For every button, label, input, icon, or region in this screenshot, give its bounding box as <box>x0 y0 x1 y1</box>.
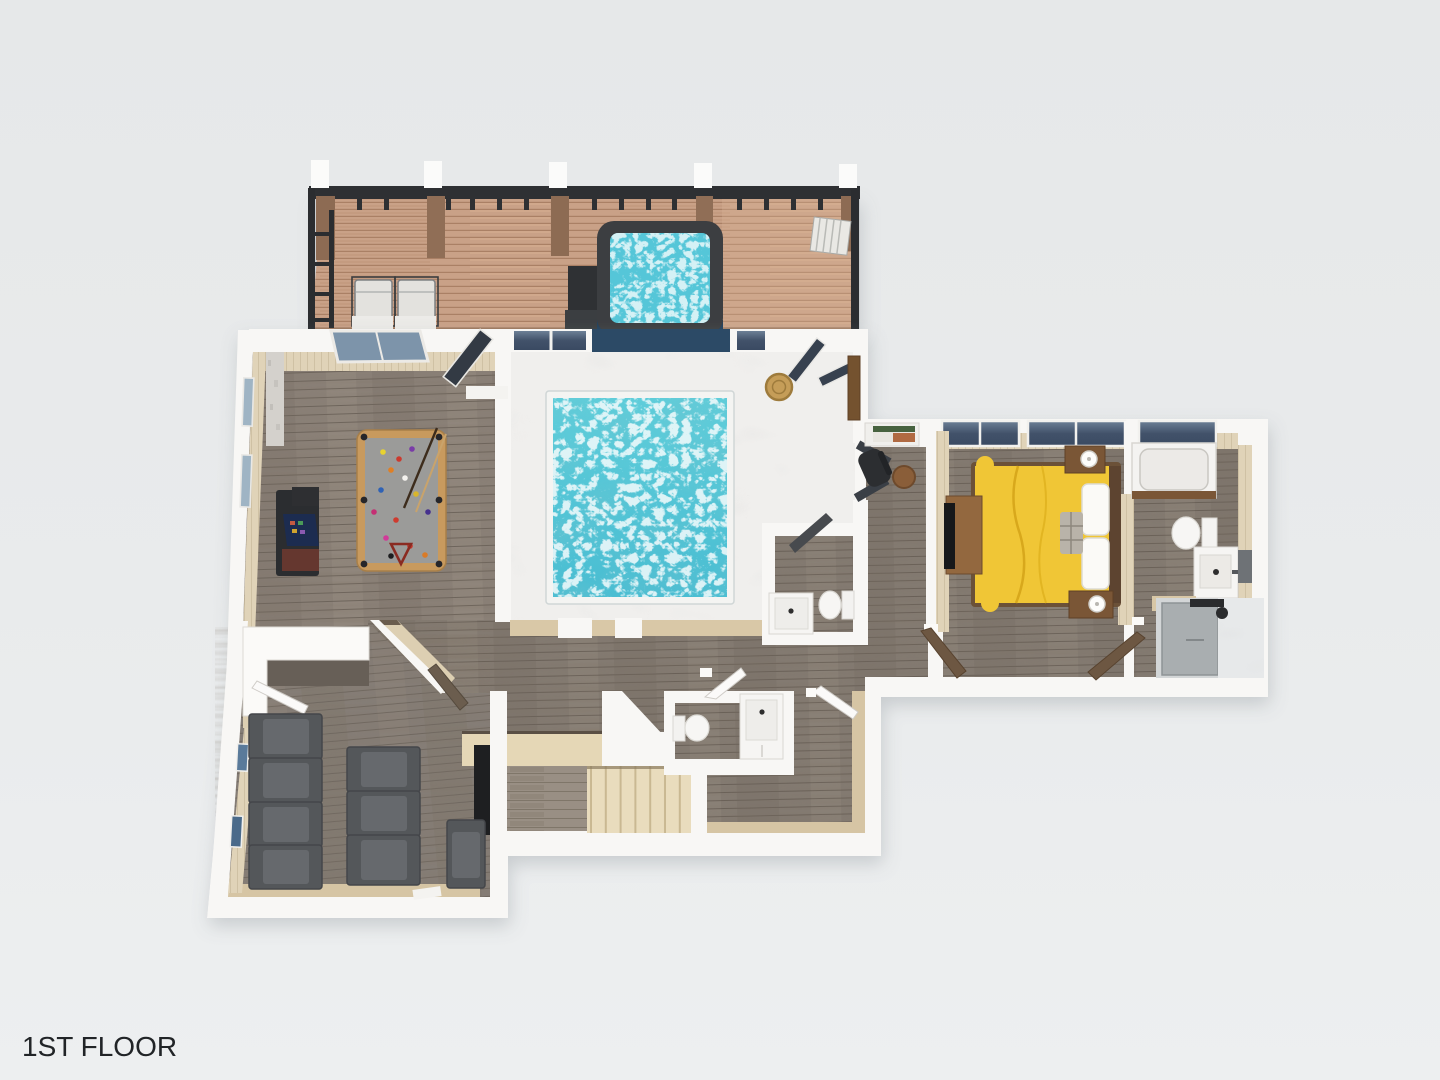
svg-text:1ST FLOOR: 1ST FLOOR <box>22 1031 177 1062</box>
